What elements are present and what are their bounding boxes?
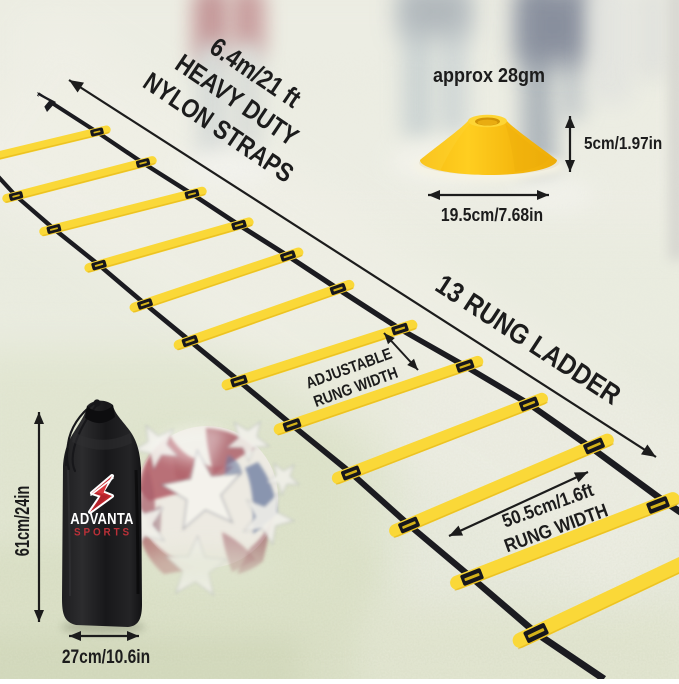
svg-text:19.5cm/7.68in: 19.5cm/7.68in — [441, 204, 543, 226]
svg-text:61cm/24in: 61cm/24in — [11, 486, 34, 557]
svg-text:27cm/10.6in: 27cm/10.6in — [62, 646, 150, 668]
svg-text:ADVANTA: ADVANTA — [70, 511, 133, 528]
svg-text:SPORTS: SPORTS — [74, 527, 132, 539]
svg-text:5cm/1.97in: 5cm/1.97in — [584, 133, 662, 153]
svg-text:approx 28gm: approx 28gm — [433, 65, 545, 87]
